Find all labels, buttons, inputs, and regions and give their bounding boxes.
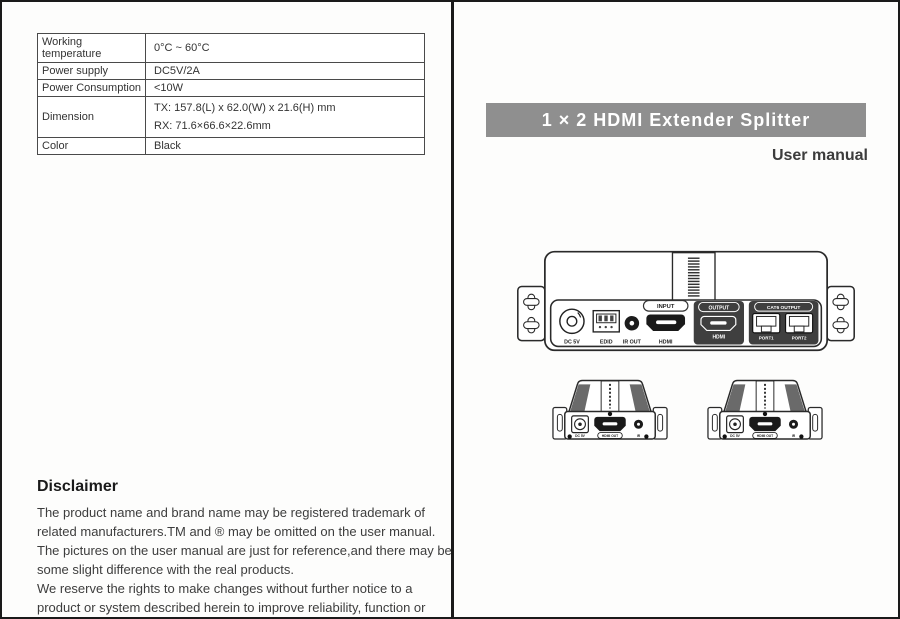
svg-text:IR OUT: IR OUT (623, 340, 642, 346)
svg-text:HDMI OUT: HDMI OUT (757, 434, 773, 438)
table-row: Power Consumption <10W (38, 80, 425, 97)
spec-label: Power supply (38, 63, 146, 80)
svg-text:HDMI: HDMI (712, 335, 725, 341)
spec-value: 0°C ~ 60°C (146, 34, 425, 63)
receiver-illustration-1: DC 5V HDMI OUT IR (551, 372, 669, 446)
disclaimer-body: The product name and brand name may be r… (37, 503, 455, 619)
mounting-ear-right (827, 286, 854, 340)
cat6-output-block: CAT6 OUTPUT PORT1 PORT2 (749, 301, 819, 345)
transmitter-illustration: DC 5V EDID IR OUT INPUT HDMI (512, 240, 860, 361)
spec-value: <10W (146, 80, 425, 97)
subtitle-user-manual: User manual (602, 147, 868, 165)
disclaimer-paragraph-1: The product name and brand name may be r… (37, 503, 455, 579)
svg-text:INPUT: INPUT (657, 304, 675, 310)
svg-text:HDMI OUT: HDMI OUT (602, 434, 618, 438)
hdmi-output-port: HDMI OUT (594, 417, 625, 439)
mounting-ear-left (518, 286, 545, 340)
svg-text:HDMI: HDMI (659, 340, 673, 346)
svg-text:IR: IR (792, 434, 796, 438)
svg-text:CAT6 OUTPUT: CAT6 OUTPUT (767, 305, 800, 311)
spec-label: Power Consumption (38, 80, 146, 97)
svg-text:DC 5V: DC 5V (564, 340, 580, 346)
svg-text:DC 5V: DC 5V (575, 434, 586, 438)
spec-label: Working temperature (38, 34, 146, 63)
table-row: Power supply DC5V/2A (38, 63, 425, 80)
dimension-rx: RX: 71.6×66.6×22.6mm (154, 117, 420, 135)
dimension-tx: TX: 157.8(L) x 62.0(W) x 21.6(H) mm (154, 99, 420, 117)
disclaimer-paragraph-2: We reserve the rights to make changes wi… (37, 579, 455, 619)
page-title: 1 × 2 HDMI Extender Splitter (486, 103, 866, 137)
table-row: Dimension TX: 157.8(L) x 62.0(W) x 21.6(… (38, 97, 425, 138)
svg-text:OUTPUT: OUTPUT (709, 305, 731, 311)
spec-value: DC5V/2A (146, 63, 425, 80)
serial-label (601, 381, 619, 411)
hdmi-output-port: OUTPUT HDMI (694, 301, 744, 345)
manual-spread: Working temperature 0°C ~ 60°C Power sup… (0, 0, 900, 619)
hdmi-output-port: HDMI OUT (749, 417, 780, 439)
svg-text:IR: IR (637, 434, 641, 438)
svg-text:PORT2: PORT2 (792, 336, 807, 341)
page-divider (451, 2, 454, 619)
table-row: Color Black (38, 138, 425, 155)
serial-label (672, 253, 715, 303)
spec-value: Black (146, 138, 425, 155)
disclaimer-heading: Disclaimer (37, 478, 118, 496)
table-row: Working temperature 0°C ~ 60°C (38, 34, 425, 63)
svg-text:EDID: EDID (600, 340, 613, 346)
spec-value: TX: 157.8(L) x 62.0(W) x 21.6(H) mm RX: … (146, 97, 425, 138)
svg-text:DC 5V: DC 5V (730, 434, 741, 438)
spec-label: Dimension (38, 97, 146, 138)
serial-label (756, 381, 774, 411)
receiver-illustration-2: DC 5V HDMI OUT IR (706, 372, 824, 446)
spec-label: Color (38, 138, 146, 155)
svg-text:PORT1: PORT1 (759, 336, 774, 341)
spec-table: Working temperature 0°C ~ 60°C Power sup… (37, 33, 425, 155)
